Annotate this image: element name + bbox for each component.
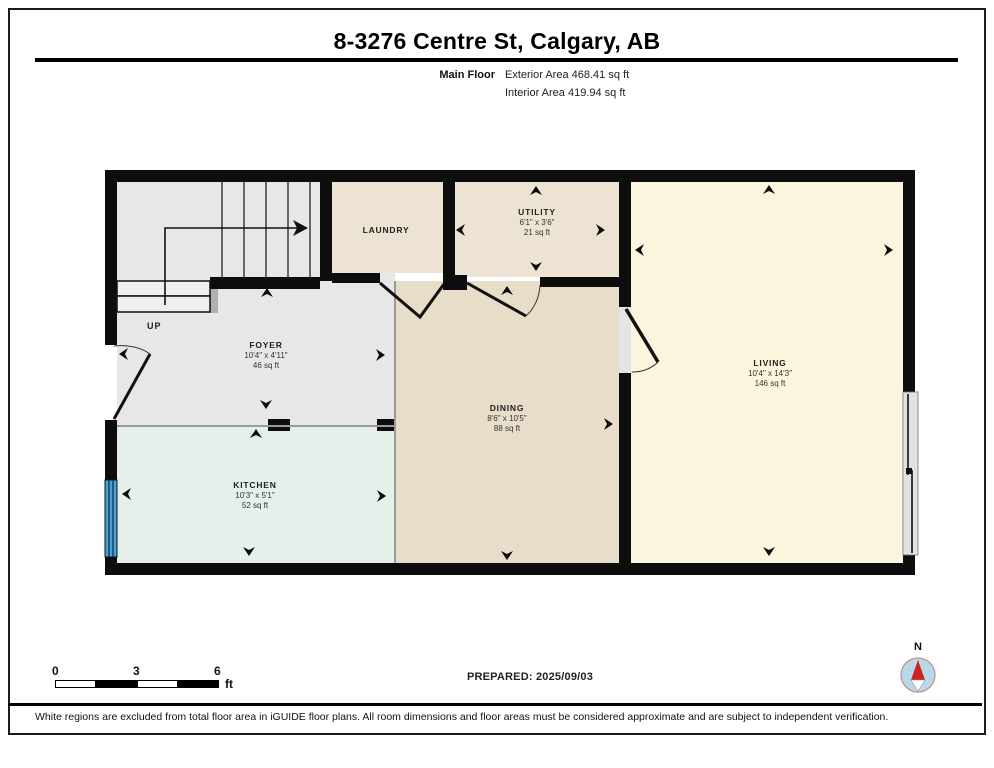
floorplan-page: 8-3276 Centre St, Calgary, AB Main Floor… [0, 0, 994, 768]
title-divider [35, 58, 958, 62]
wall-living-left-lower [619, 373, 631, 575]
room-name: LAUNDRY [316, 225, 456, 236]
floor-name-label: Main Floor [380, 69, 495, 81]
scale-segment [55, 680, 96, 688]
exterior-area-value: Exterior Area 468.41 sq ft [505, 69, 629, 81]
wall-exterior-left-mid [105, 420, 117, 480]
scale-tick-0: 0 [52, 664, 59, 678]
page-title: 8-3276 Centre St, Calgary, AB [0, 28, 994, 55]
wall-exterior-right-lower [903, 555, 915, 575]
dining-label: DINING 8'6" x 10'5" 88 sq ft [437, 403, 577, 435]
footer-divider [8, 703, 982, 706]
scale-tick-6: 6 [214, 664, 221, 678]
scale-bar: 0 3 6 ft [55, 664, 240, 694]
compass-north-label: N [895, 641, 941, 653]
wall-exterior-right-upper [903, 170, 915, 392]
wall-exterior-top [105, 170, 915, 182]
scale-segment [96, 680, 137, 688]
wall-endcap-gray [210, 289, 218, 313]
prepared-date: PREPARED: 2025/09/03 [430, 671, 630, 683]
wall-exterior-left-upper [105, 170, 117, 345]
wall-utility-bottom-left-post [443, 275, 467, 290]
wall-utility-bottom [540, 277, 619, 287]
utility-label: UTILITY 6'1" x 3'6" 21 sq ft [467, 207, 607, 239]
stairs-up-label: UP [147, 321, 187, 331]
wall-living-left-upper [619, 170, 631, 307]
scale-segment [178, 680, 219, 688]
compass: N [895, 641, 941, 697]
scale-tick-3: 3 [133, 664, 140, 678]
wall-exterior-bottom [105, 563, 915, 575]
kitchen-label: KITCHEN 10'3" x 5'1" 52 sq ft [185, 480, 325, 512]
kitchen-foyer-boundary-line [117, 425, 395, 427]
interior-area-value: Interior Area 419.94 sq ft [505, 87, 625, 99]
dining-left-boundary-line [394, 281, 396, 563]
laundry-label: LAUNDRY [316, 225, 456, 236]
foyer-label: FOYER 10'4" x 4'11" 46 sq ft [196, 340, 336, 372]
wall-exterior-left-lower [105, 557, 117, 575]
scale-unit-label: ft [225, 677, 233, 691]
wall-laundry-bottom [332, 273, 380, 283]
compass-rose-icon [895, 653, 941, 697]
scale-segment [137, 680, 178, 688]
wall-under-stairs [210, 277, 320, 289]
living-label: LIVING 10'4" x 14'3" 146 sq ft [700, 358, 840, 390]
disclaimer-text: White regions are excluded from total fl… [35, 711, 965, 723]
